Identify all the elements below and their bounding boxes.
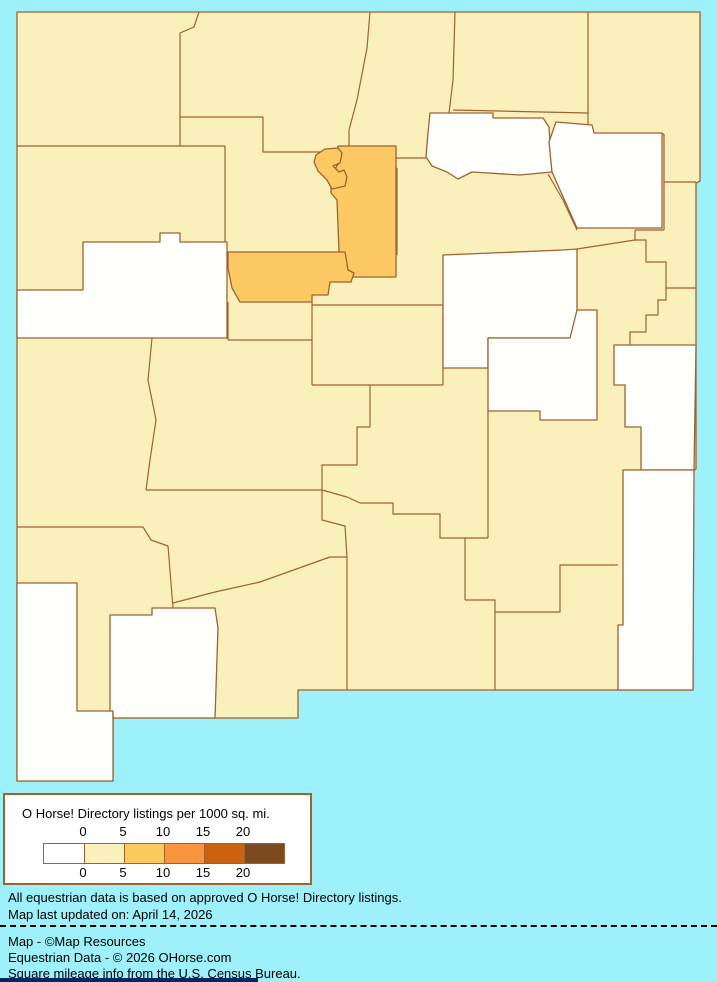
county-lea[interactable]	[618, 470, 694, 690]
legend-tick-label: 5	[119, 865, 126, 880]
last-updated-text: Map last updated on: April 14, 2026	[8, 907, 213, 922]
legend-swatch-3	[164, 844, 204, 863]
page-background: { "page": { "background_color": "#9EF0FA…	[0, 0, 717, 982]
legend-tick-label: 0	[79, 824, 86, 839]
legend-swatch-2	[124, 844, 164, 863]
county-mora[interactable]	[426, 113, 552, 179]
data-credit-text: Equestrian Data - © 2026 OHorse.com	[8, 950, 231, 965]
legend: O Horse! Directory listings per 1000 sq.…	[3, 793, 312, 885]
legend-tick-label: 15	[196, 824, 210, 839]
data-disclaimer-text: All equestrian data is based on approved…	[8, 890, 402, 905]
county-luna[interactable]	[110, 608, 218, 718]
legend-swatch-1	[84, 844, 124, 863]
bottom-border-strip	[0, 978, 258, 982]
legend-swatch-4	[204, 844, 244, 863]
legend-tick-label: 0	[79, 865, 86, 880]
legend-tick-label: 20	[236, 865, 250, 880]
legend-tick-label: 10	[156, 865, 170, 880]
legend-tick-label: 20	[236, 824, 250, 839]
legend-color-scale	[43, 843, 285, 864]
legend-swatch-0	[44, 844, 84, 863]
legend-tick-label: 5	[119, 824, 126, 839]
legend-tick-label: 15	[196, 865, 210, 880]
legend-tick-label: 10	[156, 824, 170, 839]
legend-title: O Horse! Directory listings per 1000 sq.…	[22, 806, 270, 821]
map-credit-text: Map - ©Map Resources	[8, 934, 145, 949]
legend-swatch-5	[244, 844, 284, 863]
dashed-separator	[0, 925, 717, 927]
